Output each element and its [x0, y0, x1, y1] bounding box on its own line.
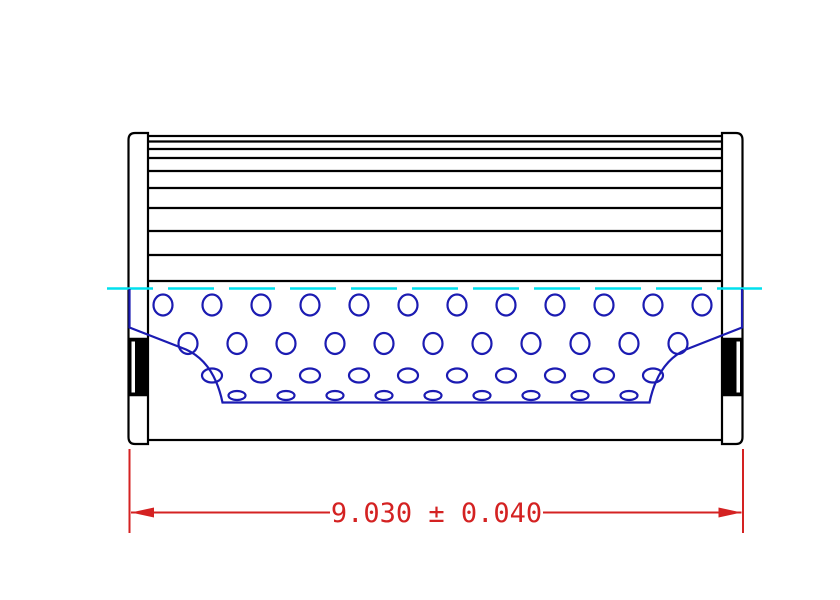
right-seal: [723, 339, 742, 396]
left-seal: [129, 339, 148, 396]
right-seal-slit: [737, 342, 741, 393]
dimension-annotation: 9.030 ± 0.040: [130, 449, 744, 533]
right-arrowhead-icon: [719, 508, 742, 518]
left-seal-slit: [132, 342, 136, 393]
filter-cross-section-drawing: 9.030 ± 0.040: [0, 0, 840, 600]
drawing-page: 9.030 ± 0.040: [0, 0, 840, 600]
left-arrowhead-icon: [131, 508, 154, 518]
dimension-text: 9.030 ± 0.040: [331, 498, 542, 529]
